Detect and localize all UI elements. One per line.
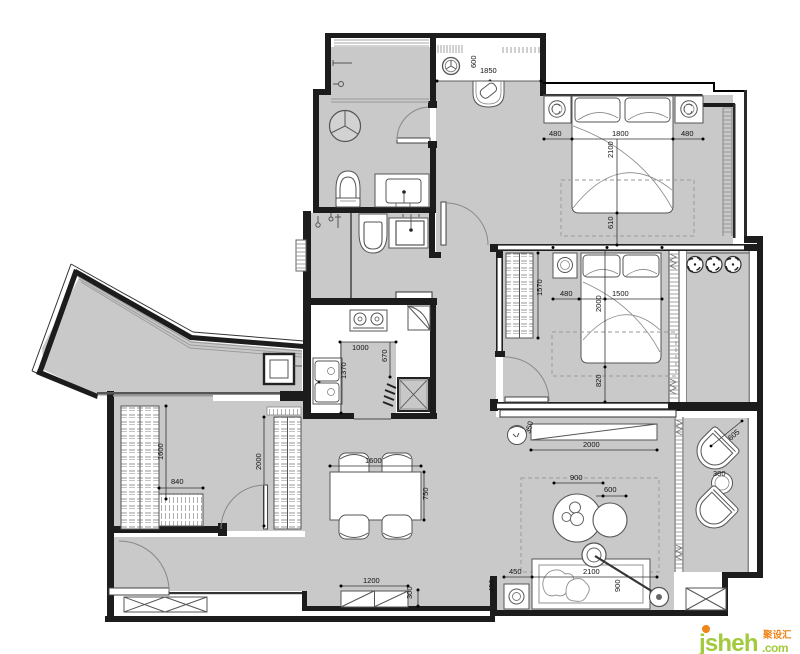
svg-text:480: 480 [560,289,573,298]
svg-text:1000: 1000 [352,343,369,352]
svg-text:450: 450 [509,567,522,576]
svg-text:380: 380 [713,469,726,478]
svg-text:2000: 2000 [583,440,600,449]
svg-text:2100: 2100 [583,567,600,576]
svg-text:600: 600 [604,485,617,494]
svg-text:450: 450 [487,579,496,592]
svg-text:1500: 1500 [612,289,629,298]
svg-text:2100: 2100 [606,141,615,158]
svg-text:300: 300 [405,586,414,599]
svg-text:2000: 2000 [254,453,263,470]
svg-text:840: 840 [171,477,184,486]
svg-text:1600: 1600 [156,443,165,460]
svg-text:600: 600 [469,55,478,68]
svg-text:750: 750 [421,487,430,500]
svg-text:2000: 2000 [594,295,603,312]
svg-text:jsheh: jsheh [698,630,758,654]
svg-text:480: 480 [681,129,694,138]
svg-text:1600: 1600 [365,456,382,465]
svg-text:1850: 1850 [480,66,497,75]
svg-text:.com: .com [762,641,788,654]
svg-text:900: 900 [613,579,622,592]
svg-text:480: 480 [549,129,562,138]
svg-text:670: 670 [380,349,389,362]
svg-text:聚设汇: 聚设汇 [762,629,792,641]
svg-text:1370: 1370 [339,362,348,379]
svg-text:1570: 1570 [535,279,544,296]
svg-text:1200: 1200 [363,576,380,585]
svg-text:900: 900 [570,473,583,482]
svg-text:610: 610 [606,216,615,229]
svg-text:820: 820 [594,374,603,387]
svg-text:1800: 1800 [612,129,629,138]
